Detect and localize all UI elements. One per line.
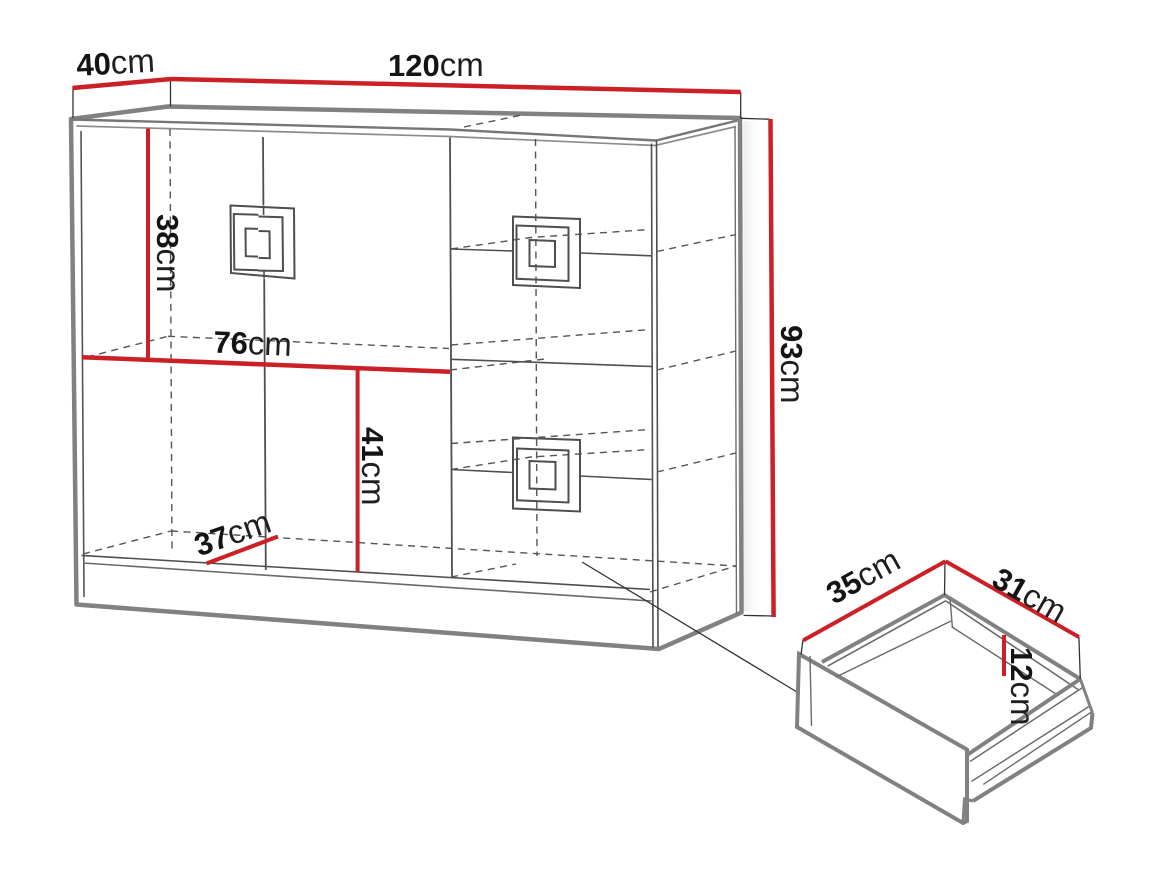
svg-text:76cm: 76cm — [213, 323, 293, 363]
svg-text:12cm: 12cm — [1004, 647, 1041, 725]
svg-text:38cm: 38cm — [150, 214, 187, 292]
svg-text:120cm: 120cm — [388, 46, 484, 83]
svg-text:93cm: 93cm — [774, 325, 811, 403]
svg-text:40cm: 40cm — [75, 42, 155, 83]
svg-text:41cm: 41cm — [355, 427, 392, 505]
